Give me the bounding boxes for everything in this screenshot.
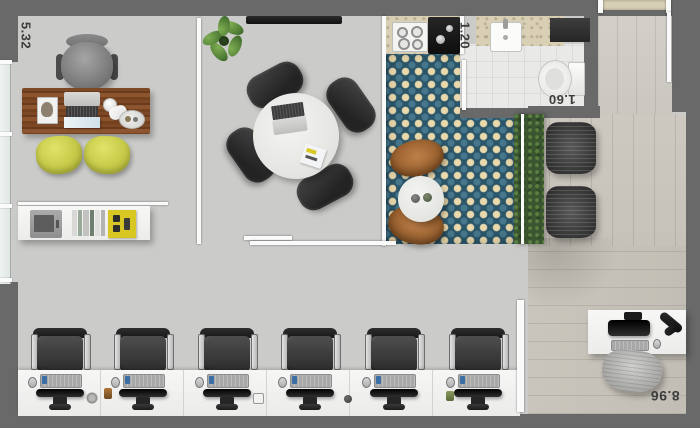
reception-paper xyxy=(64,117,100,128)
desk-accessory-dice xyxy=(253,393,264,404)
window-left xyxy=(0,60,11,284)
workstation-chair xyxy=(365,328,423,372)
desk-seam xyxy=(183,370,184,416)
floor-shadow xyxy=(528,238,618,308)
workstation xyxy=(446,374,516,414)
lounge-bench xyxy=(546,122,596,174)
wall-right xyxy=(686,0,700,428)
wall-tv xyxy=(246,16,342,24)
yellow-magazine xyxy=(108,210,136,238)
sliding-door-panel xyxy=(244,236,292,240)
floor-plan: 5.32 xyxy=(0,0,700,428)
workstation-chair xyxy=(281,328,339,372)
sliding-door-panel xyxy=(250,241,396,245)
wall-left-upper xyxy=(0,0,18,62)
partition-line-reception xyxy=(18,202,168,205)
desk-seam xyxy=(266,370,267,416)
workstation xyxy=(111,374,181,414)
desk-seam xyxy=(349,370,350,416)
desk-accessory xyxy=(86,392,98,404)
office-partition xyxy=(517,300,524,412)
workstation xyxy=(278,374,348,414)
cup xyxy=(411,194,420,203)
entry-door-leaf xyxy=(667,12,671,82)
dimension-label-bathroom-depth: 1.60 xyxy=(540,92,584,107)
window-mullion xyxy=(0,132,12,136)
bathroom-sink xyxy=(490,22,522,52)
guest-chair-yellow xyxy=(83,135,131,175)
wall-bottom xyxy=(0,414,700,428)
wall-left-lower xyxy=(0,282,18,428)
manager-monitor xyxy=(608,320,650,336)
dimension-label-open-office: 8.96 xyxy=(638,388,692,404)
printer xyxy=(30,210,62,238)
entry-doormat xyxy=(602,0,670,10)
kitchen-sink xyxy=(428,17,460,54)
bathroom-cabinet xyxy=(550,18,590,42)
wall-corridor-right xyxy=(672,0,688,112)
faucet xyxy=(503,19,508,29)
desk-accessory xyxy=(104,388,112,399)
desk-accessory-plant xyxy=(446,391,454,401)
desk-seam xyxy=(100,370,101,416)
serving-tray xyxy=(119,110,145,129)
reception-office-chair xyxy=(56,34,118,94)
plant xyxy=(200,18,248,64)
hedge-glass-line xyxy=(521,114,524,244)
webcam xyxy=(624,312,642,320)
bathroom-door-leaf xyxy=(462,60,466,110)
desk-accessory xyxy=(344,395,352,403)
workstation-chair xyxy=(114,328,172,372)
door-frame-left xyxy=(598,0,603,13)
workstation-chair xyxy=(198,328,256,372)
workstation-chair xyxy=(31,328,89,372)
workstation xyxy=(362,374,432,414)
cooktop xyxy=(392,22,428,52)
reception-laptop-screen xyxy=(64,92,100,106)
lounge-bench xyxy=(546,186,596,238)
cafe-table xyxy=(398,176,444,222)
entry-corridor-floor xyxy=(598,8,674,114)
window-mullion xyxy=(0,278,12,282)
manager-mouse xyxy=(653,339,661,349)
window-mullion xyxy=(0,204,12,208)
desk-card-holder xyxy=(37,97,58,124)
book-stack xyxy=(72,210,106,236)
dimension-label-bathroom-width: 1.20 xyxy=(458,18,473,54)
meeting-laptop xyxy=(270,102,308,136)
guest-chair-yellow xyxy=(35,134,84,175)
hedge-green-wall xyxy=(514,114,544,244)
workstation-chair xyxy=(449,328,507,372)
window-mullion xyxy=(0,60,12,64)
desk-seam xyxy=(432,370,433,416)
reception-laptop-keyboard xyxy=(66,106,98,117)
dimension-label-reception: 5.32 xyxy=(19,18,34,54)
cup xyxy=(423,193,432,202)
